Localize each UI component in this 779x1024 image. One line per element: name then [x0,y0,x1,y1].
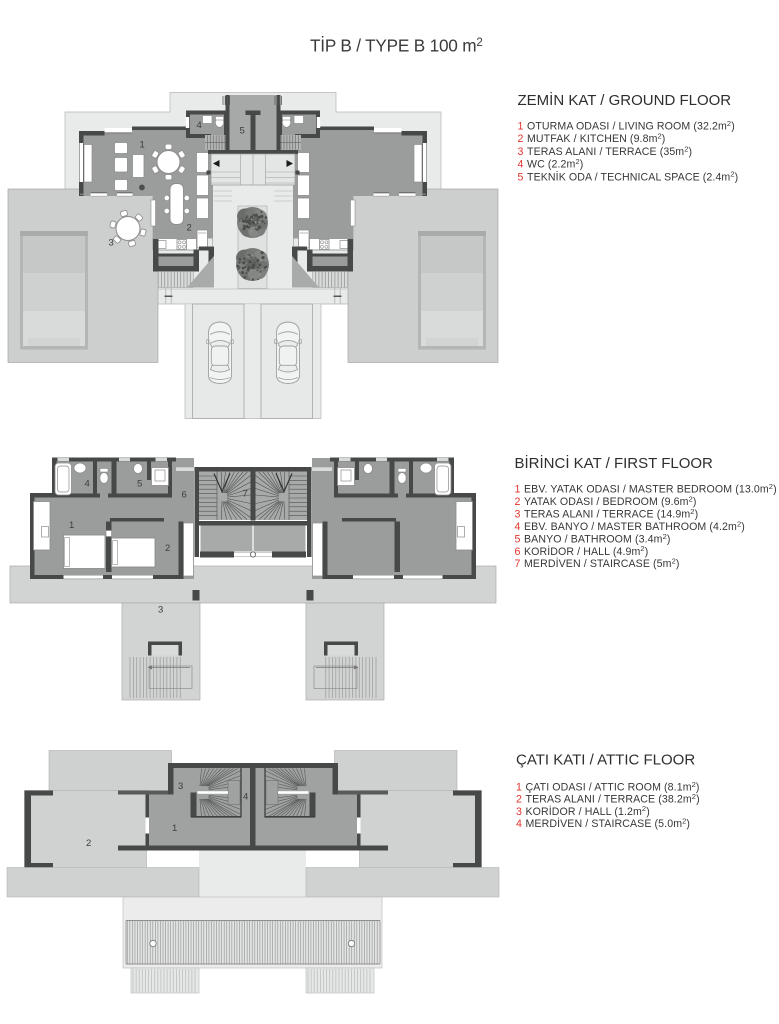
svg-text:4: 4 [243,792,248,803]
svg-text:5: 5 [240,126,245,137]
svg-text:MERDİVEN / STAIRCASE (5m2): MERDİVEN / STAIRCASE (5m2) [524,557,680,571]
svg-text:1: 1 [140,140,145,151]
svg-text:4: 4 [515,521,521,533]
svg-text:TEKNİK ODA / TECHNICAL SPACE (: TEKNİK ODA / TECHNICAL SPACE (2.4m2) [527,170,738,184]
svg-text:5: 5 [137,479,142,490]
svg-text:3: 3 [158,605,163,616]
svg-text:MERDİVEN / STAIRCASE (5.0m2): MERDİVEN / STAIRCASE (5.0m2) [526,816,691,830]
svg-text:1: 1 [172,823,177,834]
svg-text:3: 3 [178,781,183,792]
svg-text:OTURMA ODASI / LIVING ROOM (32: OTURMA ODASI / LIVING ROOM (32.2m2) [527,119,735,133]
svg-text:EBV. BANYO / MASTER BATHROOM (: EBV. BANYO / MASTER BATHROOM (4.2m2) [524,519,745,533]
svg-text:2: 2 [515,496,521,508]
svg-text:5: 5 [518,171,524,183]
svg-text:3: 3 [515,509,521,521]
svg-text:7: 7 [515,558,521,570]
svg-text:WC (2.2m2): WC (2.2m2) [527,157,583,171]
svg-text:YATAK ODASI / BEDROOM (9.6m2): YATAK ODASI / BEDROOM (9.6m2) [524,495,697,509]
svg-text:TİP B / TYPE B 100 m2: TİP B / TYPE B 100 m2 [310,36,483,56]
svg-text:TERAS ALANI / TERRACE (14.9m2: TERAS ALANI / TERRACE (14.9m2) [524,507,698,521]
svg-text:4: 4 [516,818,522,830]
svg-text:2: 2 [86,838,91,849]
svg-text:1: 1 [515,484,521,496]
svg-text:3: 3 [109,238,114,249]
svg-text:2: 2 [187,223,192,234]
svg-text:BANYO / BATHROOM (3.4m2): BANYO / BATHROOM (3.4m2) [524,532,671,546]
svg-text:4: 4 [197,120,202,131]
svg-text:MUTFAK / KITCHEN (9.8m2): MUTFAK / KITCHEN (9.8m2) [527,132,665,146]
svg-text:TERAS ALANI / TERRACE (35m2): TERAS ALANI / TERRACE (35m2) [527,144,692,158]
svg-text:KORİDOR / HALL (1.2m2): KORİDOR / HALL (1.2m2) [526,804,650,818]
svg-text:5: 5 [515,533,521,545]
svg-text:1: 1 [69,520,74,531]
svg-text:1: 1 [518,121,524,133]
svg-text:6: 6 [515,546,521,558]
svg-text:EBV. YATAK ODASI / MASTER BEDR: EBV. YATAK ODASI / MASTER BEDROOM (13.0m… [524,482,777,496]
svg-text:KORİDOR / HALL (4.9m2): KORİDOR / HALL (4.9m2) [524,544,648,558]
svg-text:4: 4 [518,159,524,171]
svg-text:ÇATI KATI / ATTIC FLOOR: ÇATI KATI / ATTIC FLOOR [516,752,695,769]
svg-text:3: 3 [516,806,522,818]
svg-text:ZEMİN KAT / GROUND FLOOR: ZEMİN KAT / GROUND FLOOR [518,91,732,109]
svg-text:ÇATI ODASI / ATTIC ROOM (8.1m2: ÇATI ODASI / ATTIC ROOM (8.1m2) [526,780,700,794]
svg-text:2: 2 [165,543,170,554]
svg-text:2: 2 [516,794,522,806]
svg-text:TERAS ALANI / TERRACE (38.2m2: TERAS ALANI / TERRACE (38.2m2) [526,792,700,806]
svg-text:4: 4 [85,479,90,490]
svg-text:6: 6 [182,490,187,501]
svg-text:1: 1 [516,781,522,793]
svg-text:2: 2 [518,133,524,145]
svg-text:7: 7 [243,489,248,500]
svg-text:3: 3 [518,146,524,158]
svg-text:BİRİNCİ KAT / FIRST FLOOR: BİRİNCİ KAT / FIRST FLOOR [515,454,714,472]
